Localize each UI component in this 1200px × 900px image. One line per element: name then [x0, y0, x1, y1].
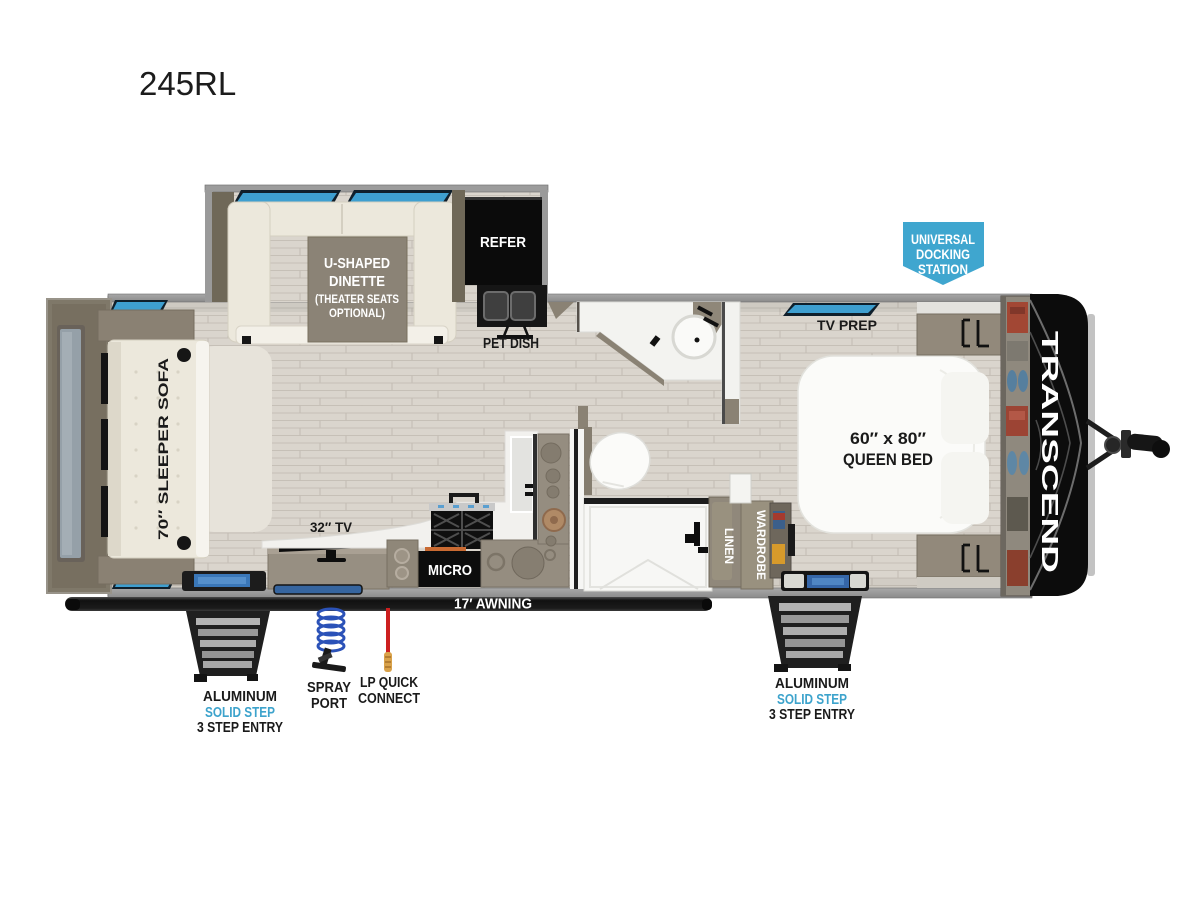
svg-text:(THEATER SEATS: (THEATER SEATS [315, 292, 399, 306]
svg-text:ALUMINUM: ALUMINUM [203, 689, 277, 705]
svg-text:MICRO: MICRO [428, 563, 472, 579]
svg-text:70″ SLEEPER SOFA: 70″ SLEEPER SOFA [156, 358, 171, 540]
svg-text:LINEN: LINEN [722, 528, 736, 564]
svg-text:DINETTE: DINETTE [329, 273, 385, 290]
svg-text:WARDROBE: WARDROBE [754, 510, 768, 580]
svg-text:ALUMINUM: ALUMINUM [775, 676, 849, 692]
svg-text:CONNECT: CONNECT [358, 691, 420, 707]
svg-text:DOCKING: DOCKING [916, 247, 970, 262]
svg-text:32″ TV: 32″ TV [310, 519, 353, 535]
svg-text:QUEEN BED: QUEEN BED [843, 451, 933, 469]
svg-text:PET DISH: PET DISH [483, 336, 539, 352]
svg-text:OPTIONAL): OPTIONAL) [329, 306, 385, 320]
svg-text:STATION: STATION [918, 262, 968, 277]
svg-text:3 STEP ENTRY: 3 STEP ENTRY [197, 720, 283, 736]
svg-text:SOLID STEP: SOLID STEP [205, 705, 275, 721]
svg-text:UNIVERSAL: UNIVERSAL [911, 232, 975, 247]
svg-text:17′ AWNING: 17′ AWNING [454, 597, 532, 613]
svg-text:TRANSCEND: TRANSCEND [1037, 331, 1063, 573]
svg-text:SPRAY: SPRAY [307, 680, 351, 696]
svg-text:TV PREP: TV PREP [817, 317, 877, 333]
svg-text:REFER: REFER [480, 235, 526, 251]
svg-text:LP QUICK: LP QUICK [360, 675, 418, 691]
svg-text:PORT: PORT [311, 696, 347, 712]
svg-text:SOLID STEP: SOLID STEP [777, 692, 847, 708]
svg-text:3 STEP ENTRY: 3 STEP ENTRY [769, 707, 855, 723]
svg-text:245RL: 245RL [139, 65, 236, 102]
svg-text:60″ x 80″: 60″ x 80″ [850, 430, 926, 448]
svg-text:U-SHAPED: U-SHAPED [324, 255, 390, 272]
